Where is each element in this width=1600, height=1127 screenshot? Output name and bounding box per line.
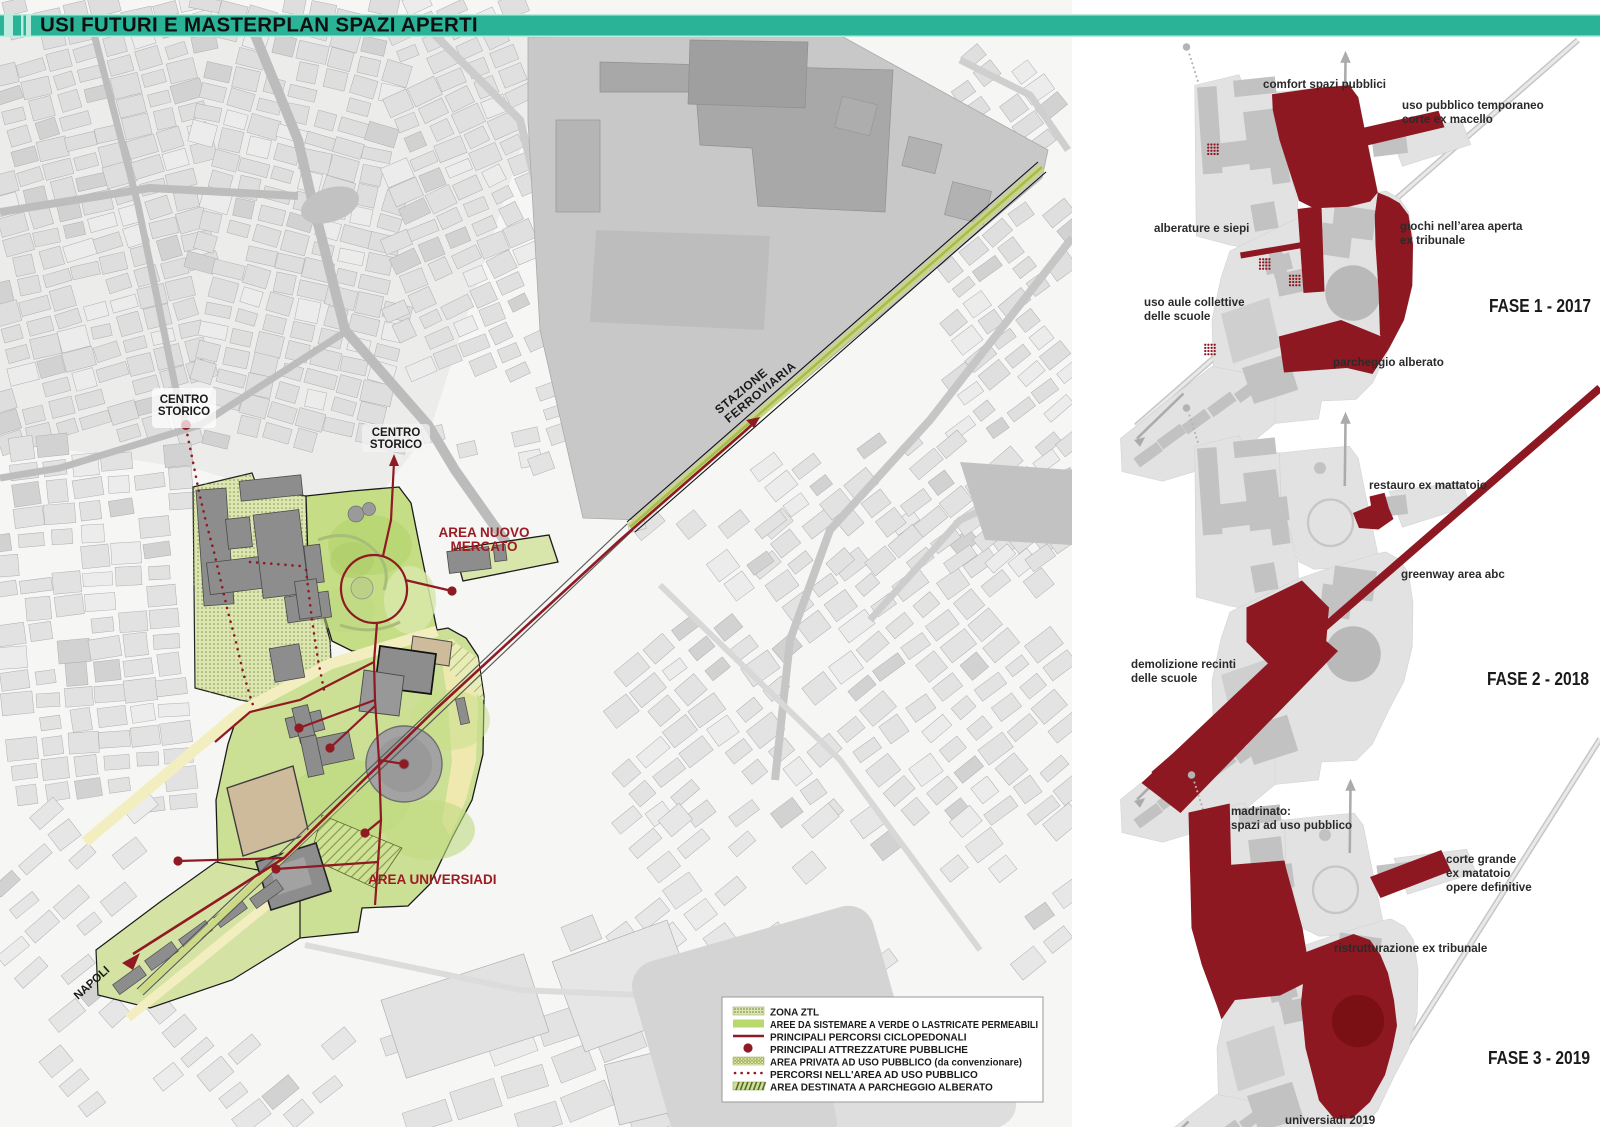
svg-text:PRINCIPALI ATTREZZATURE PUBBLI: PRINCIPALI ATTREZZATURE PUBBLICHE xyxy=(770,1045,968,1056)
svg-text:universiadi 2019: universiadi 2019 xyxy=(1285,1114,1376,1127)
svg-text:AREA DESTINATA A PARCHEGGIO AL: AREA DESTINATA A PARCHEGGIO ALBERATO xyxy=(770,1083,993,1094)
svg-text:ex tribunale: ex tribunale xyxy=(1400,234,1466,247)
svg-text:AREA NUOVO: AREA NUOVO xyxy=(438,525,529,540)
svg-text:USI FUTURI E MASTERPLAN SPAZI: USI FUTURI E MASTERPLAN SPAZI APERTI xyxy=(40,14,478,37)
svg-text:PRINCIPALI PERCORSI CICLOPEDON: PRINCIPALI PERCORSI CICLOPEDONALI xyxy=(770,1033,967,1044)
svg-text:PERCORSI NELL'AREA AD USO PUBB: PERCORSI NELL'AREA AD USO PUBBLICO xyxy=(770,1070,978,1081)
svg-text:corte grande: corte grande xyxy=(1446,853,1517,866)
svg-text:ZONA ZTL: ZONA ZTL xyxy=(770,1008,819,1019)
svg-text:delle scuole: delle scuole xyxy=(1131,672,1198,685)
svg-text:parcheggio alberato: parcheggio alberato xyxy=(1333,356,1444,369)
svg-text:uso aule collettive: uso aule collettive xyxy=(1144,296,1245,309)
svg-text:comfort spazi pubblici: comfort spazi pubblici xyxy=(1263,78,1386,91)
svg-text:opere definitive: opere definitive xyxy=(1446,881,1532,894)
svg-text:giochi nell’area aperta: giochi nell’area aperta xyxy=(1400,220,1523,233)
svg-text:MERCATO: MERCATO xyxy=(451,539,518,554)
svg-text:ex matatoio: ex matatoio xyxy=(1446,867,1510,880)
svg-text:CENTRO: CENTRO xyxy=(160,394,209,406)
svg-text:FASE 2 - 2018: FASE 2 - 2018 xyxy=(1487,669,1589,689)
svg-text:AREA PRIVATA AD USO PUBBLICO (: AREA PRIVATA AD USO PUBBLICO (da convenz… xyxy=(770,1058,1022,1069)
svg-text:corte ex macello: corte ex macello xyxy=(1402,113,1493,126)
svg-text:uso pubblico temporaneo: uso pubblico temporaneo xyxy=(1402,99,1544,112)
svg-text:FASE 3 - 2019: FASE 3 - 2019 xyxy=(1488,1048,1590,1068)
svg-text:STORICO: STORICO xyxy=(370,439,422,451)
svg-text:greenway area abc: greenway area abc xyxy=(1401,568,1505,581)
svg-text:AREE DA SISTEMARE A VERDE O LA: AREE DA SISTEMARE A VERDE O LASTRICATE P… xyxy=(770,1020,1038,1031)
svg-text:FASE 1 - 2017: FASE 1 - 2017 xyxy=(1489,296,1591,316)
svg-text:demolizione recinti: demolizione recinti xyxy=(1131,658,1236,671)
svg-text:alberature e siepi: alberature e siepi xyxy=(1154,222,1249,235)
svg-text:CENTRO: CENTRO xyxy=(372,427,421,439)
svg-text:restauro ex mattatoio: restauro ex mattatoio xyxy=(1369,479,1487,492)
svg-text:AREA UNIVERSIADI: AREA UNIVERSIADI xyxy=(368,872,497,887)
svg-text:STORICO: STORICO xyxy=(158,406,210,418)
svg-text:delle scuole: delle scuole xyxy=(1144,310,1211,323)
svg-text:ristrutturazione ex tribunale: ristrutturazione ex tribunale xyxy=(1334,942,1488,955)
svg-text:spazi ad uso pubblico: spazi ad uso pubblico xyxy=(1231,819,1352,832)
svg-text:madrinato:: madrinato: xyxy=(1231,805,1291,818)
